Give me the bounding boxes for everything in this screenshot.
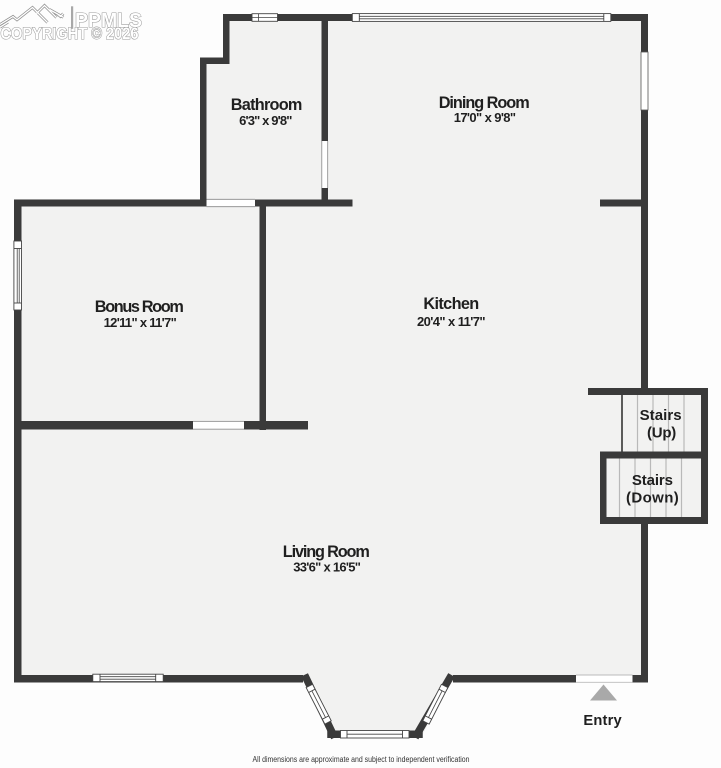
svg-text:Entry: Entry [583,713,622,729]
svg-text:Stairs: Stairs [640,407,682,424]
svg-text:(Up): (Up) [647,424,676,441]
svg-text:17'0" x 9'8": 17'0" x 9'8" [454,110,516,125]
svg-text:Living Room: Living Room [283,543,370,561]
svg-text:COPYRIGHT © 2026: COPYRIGHT © 2026 [1,25,139,43]
svg-text:20'4" x 11'7": 20'4" x 11'7" [417,314,486,329]
svg-text:12'11" x 11'7": 12'11" x 11'7" [104,315,177,330]
svg-text:Bathroom: Bathroom [231,96,303,114]
svg-text:Bonus Room: Bonus Room [95,298,184,316]
svg-text:6'3" x 9'8": 6'3" x 9'8" [239,113,292,128]
svg-text:All dimensions are approximate: All dimensions are approximate and subje… [253,755,470,764]
svg-text:33'6" x 16'5": 33'6" x 16'5" [293,560,361,575]
svg-text:Kitchen: Kitchen [423,295,479,313]
svg-text:Stairs: Stairs [632,472,673,489]
svg-text:(Down): (Down) [626,489,679,506]
